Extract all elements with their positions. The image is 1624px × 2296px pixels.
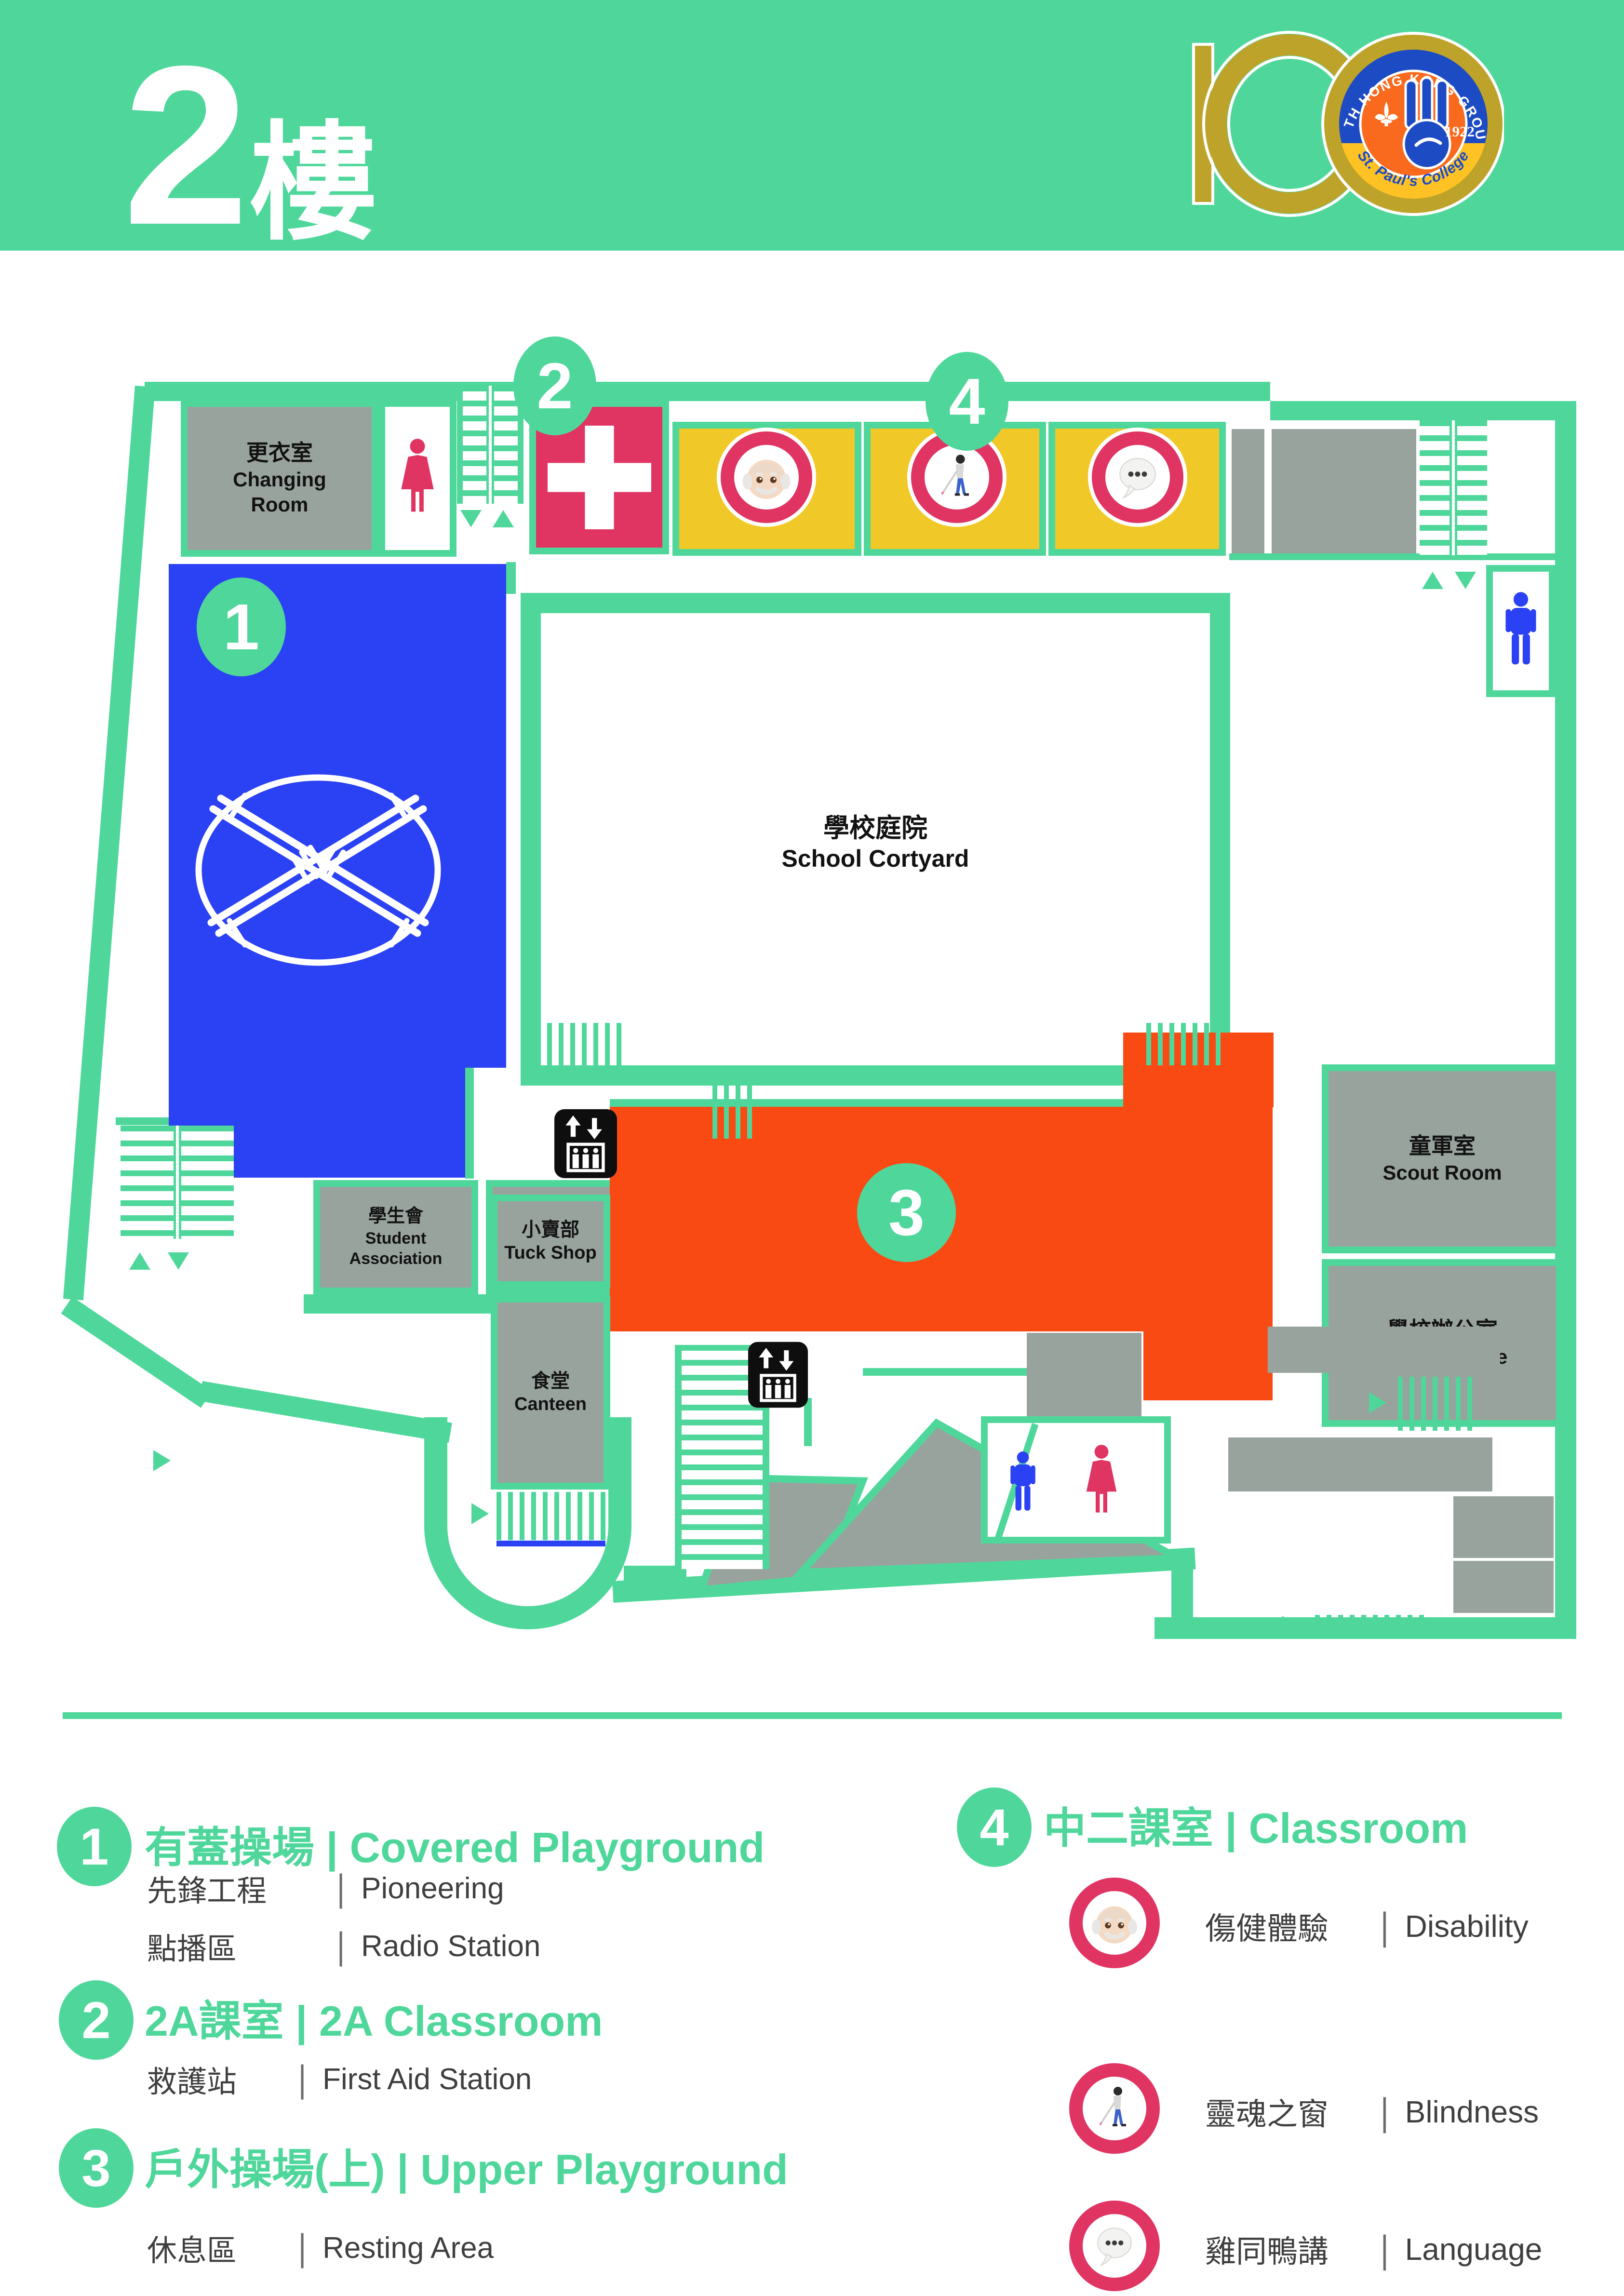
marker-1: 1	[197, 577, 286, 676]
row-zh: 救護站	[147, 2057, 282, 2101]
male-toilet-icon	[1503, 591, 1539, 671]
stair-hatch	[497, 1492, 605, 1540]
tuck-shop: 小賣部 Tuck Shop	[491, 1195, 610, 1288]
wall-segment	[1229, 553, 1562, 560]
stair-rail	[486, 386, 494, 504]
right-triangle-icon	[1282, 1616, 1300, 1637]
legend-1-row-2: 點播區 | Radio Station	[147, 1924, 540, 1968]
disability-room-badge	[721, 431, 812, 523]
wall-segment	[199, 1381, 452, 1443]
legend-blindness-badge	[1069, 2063, 1160, 2154]
separator: |	[298, 2227, 306, 2269]
wall-segment	[1555, 401, 1576, 1639]
school-courtyard: 學校庭院 School Cortyard	[521, 593, 1230, 1086]
staircase	[457, 386, 523, 504]
legend-3-title-en: Upper Playground	[420, 2146, 788, 2193]
sa-label-en: Student Association	[333, 1228, 458, 1269]
staircase	[1420, 420, 1487, 555]
wall-segment	[61, 1297, 213, 1408]
row-zh: 傷健體驗	[1205, 1904, 1364, 1948]
toilets-room-bottom	[981, 1416, 1171, 1544]
logo-year: 1922	[1445, 123, 1475, 140]
down-triangle-icon	[1455, 572, 1476, 589]
canteen-label-zh: 食堂	[514, 1369, 587, 1393]
floor-number: 2	[123, 40, 249, 251]
scout-label-en: Scout Room	[1382, 1160, 1502, 1186]
marker-1-label: 1	[223, 590, 259, 664]
separator: |	[326, 1824, 338, 1871]
legend-4-row-1: 傷健體驗 | Disability	[1205, 1904, 1529, 1948]
separator: |	[298, 2058, 306, 2101]
separator: |	[1381, 2227, 1389, 2272]
wall-segment	[1270, 401, 1576, 420]
row-zh: 點播區	[147, 1924, 321, 1968]
structure-block	[1453, 1496, 1554, 1558]
marker-3-label: 3	[888, 1175, 925, 1250]
wall-segment	[145, 382, 1270, 401]
person-with-white-cane-icon	[932, 452, 982, 502]
down-triangle-icon	[168, 1252, 189, 1270]
row-zh: 休息區	[147, 2226, 282, 2269]
stair-hatch	[1398, 1377, 1477, 1431]
tuck-label-zh: 小賣部	[504, 1218, 596, 1242]
legend-3-title-zh: 戶外操場(上)	[145, 2146, 385, 2193]
legend-1-circle: 1	[57, 1807, 132, 1886]
legend-4-title: 中二課室 | Classroom	[1044, 1794, 1468, 1855]
female-toilet-room-top	[378, 400, 456, 557]
legend-2-title-en: 2A Classroom	[319, 1997, 603, 2045]
separator: |	[295, 1997, 308, 2045]
separator: |	[397, 2146, 409, 2193]
up-triangle-icon	[493, 510, 514, 527]
storage-room	[1232, 429, 1264, 553]
legend-4-title-zh: 中二課室	[1044, 1804, 1213, 1852]
legend-3-circle: 3	[59, 2128, 134, 2208]
stair-rail	[1450, 420, 1457, 555]
scout-badge: 10 TH HONG KONG GROUP St. Paul's College	[1323, 33, 1504, 215]
legend-2-title: 2A課室 | 2A Classroom	[145, 1987, 603, 2048]
storage-room	[1272, 429, 1416, 553]
legend-2-num: 2	[81, 1990, 110, 2050]
legend-3-row-1: 休息區 | Resting Area	[147, 2226, 494, 2269]
first-aid-cross-icon	[548, 426, 651, 529]
courtyard-label-zh: 學校庭院	[782, 806, 969, 845]
old-man-face-icon	[1089, 1898, 1140, 1948]
marker-4-label: 4	[949, 364, 985, 439]
floor-word: 樓	[249, 117, 376, 251]
row-en: First Aid Station	[322, 2062, 532, 2096]
marker-2-label: 2	[537, 349, 573, 423]
wall-segment	[465, 1068, 474, 1179]
right-triangle-icon	[153, 1450, 171, 1471]
up-triangle-icon	[129, 1252, 150, 1270]
wall-segment	[506, 562, 516, 594]
row-zh: 靈魂之窗	[1205, 2090, 1364, 2134]
row-en: Disability	[1405, 1908, 1529, 1944]
tuck-label-en: Tuck Shop	[504, 1242, 596, 1265]
old-man-face-icon	[740, 451, 793, 504]
marker-3: 3	[857, 1163, 956, 1262]
legend-language-badge	[1069, 2201, 1160, 2291]
staircase	[121, 1126, 234, 1239]
up-triangle-icon	[1422, 572, 1443, 589]
structure-block	[1228, 1437, 1492, 1491]
sa-label-zh: 學生會	[333, 1205, 458, 1228]
elevator-icon	[554, 1109, 617, 1179]
upper-playground-area	[1143, 1328, 1273, 1400]
legend-1-num: 1	[80, 1816, 108, 1877]
legend-4-row-2: 靈魂之窗 | Blindness	[1205, 2090, 1539, 2134]
right-triangle-icon	[471, 1503, 489, 1524]
student-association-room: 學生會 Student Association	[313, 1180, 478, 1294]
stair-hatch	[712, 1086, 757, 1139]
stair-hatch	[1146, 1023, 1224, 1065]
legend-divider	[63, 1712, 1562, 1719]
row-en: Radio Station	[361, 1929, 540, 1963]
row-zh: 雞同鴨講	[1205, 2227, 1364, 2271]
canteen-label-en: Canteen	[514, 1393, 587, 1416]
row-en: Pioneering	[361, 1871, 504, 1906]
row-zh: 先鋒工程	[147, 1866, 321, 1910]
courtyard-label-en: School Cortyard	[782, 845, 969, 873]
structure-block	[1268, 1327, 1500, 1373]
legend-3-title: 戶外操場(上) | Upper Playground	[145, 2135, 788, 2197]
right-triangle-icon	[1369, 1392, 1386, 1413]
male-toilet-room-top	[1486, 565, 1556, 697]
anniversary-logo: 10 TH HONG KONG GROUP St. Paul's College	[1186, 24, 1504, 227]
page-title: 2 樓	[123, 0, 376, 251]
person-with-white-cane-icon	[1090, 2084, 1139, 2133]
legend-1-row-1: 先鋒工程 | Pioneering	[147, 1866, 504, 1910]
legend-1-title: 有蓋操場 | Covered Playground	[145, 1813, 765, 1875]
legend-disability-badge	[1069, 1878, 1160, 1968]
legend-1-title-zh: 有蓋操場	[145, 1824, 314, 1871]
down-triangle-icon	[460, 510, 482, 527]
legend-1-title-en: Covered Playground	[350, 1824, 765, 1871]
legend-2-title-zh: 2A課室	[145, 1997, 284, 2045]
stair-rail	[174, 1126, 181, 1239]
language-room-badge	[1092, 431, 1183, 523]
row-en: Language	[1405, 2231, 1543, 2267]
scout-room: 童軍室 Scout Room	[1322, 1064, 1563, 1253]
row-en: Resting Area	[322, 2231, 494, 2265]
stair-hatch	[547, 1023, 628, 1065]
separator: |	[337, 1867, 345, 1910]
legend-4-title-en: Classroom	[1249, 1804, 1468, 1852]
header-banner: 2 樓 10 TH HONG KONG GROUP	[0, 0, 1624, 251]
legend-4-row-3: 雞同鴨講 | Language	[1205, 2227, 1542, 2271]
scout-salute-hand-icon	[1404, 78, 1450, 168]
marker-4: 4	[926, 352, 1008, 451]
changing-room-label-en: Changing Room	[207, 467, 352, 518]
legend-3-num: 3	[81, 2138, 110, 2198]
legend-4-num: 4	[980, 1797, 1008, 1857]
changing-room-label-zh: 更衣室	[207, 439, 352, 467]
legend-4-circle: 4	[957, 1787, 1032, 1867]
pioneering-lashing-icon	[183, 766, 453, 974]
marker-2: 2	[513, 336, 596, 435]
row-en: Blindness	[1405, 2094, 1539, 2130]
elevator-icon	[748, 1341, 808, 1409]
female-toilet-icon	[1084, 1444, 1119, 1519]
separator: |	[1381, 1904, 1389, 1949]
separator: |	[337, 1925, 345, 1968]
changing-room: 更衣室 Changing Room	[181, 400, 378, 557]
speech-balloon-icon	[1112, 451, 1164, 503]
legend-2-circle: 2	[59, 1980, 134, 2060]
legend-2-row-1: 救護站 | First Aid Station	[147, 2057, 532, 2101]
separator: |	[1225, 1804, 1237, 1852]
female-toilet-icon	[399, 438, 436, 519]
scout-label-zh: 童軍室	[1382, 1132, 1502, 1160]
platform-edge-line	[497, 1541, 605, 1546]
structure-block	[1453, 1561, 1554, 1613]
separator: |	[1381, 2090, 1389, 2135]
male-toilet-icon	[1008, 1451, 1038, 1516]
floor-plan-poster: 2 樓 10 TH HONG KONG GROUP	[0, 0, 1624, 2296]
stair-hatch	[1315, 1615, 1425, 1639]
speech-balloon-icon	[1090, 2221, 1139, 2270]
